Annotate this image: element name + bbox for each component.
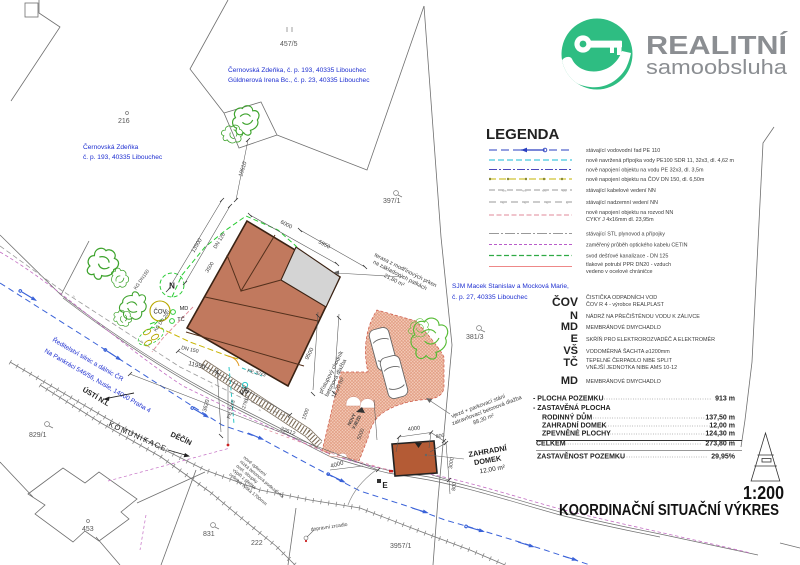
svg-text:TČ: TČ bbox=[177, 316, 184, 323]
svg-text:MD: MD bbox=[180, 306, 189, 312]
svg-text:NÁDRŽ NA PŘEČIŠTĚNOU VODU K ZÁ: NÁDRŽ NA PŘEČIŠTĚNOU VODU K ZÁLIVCE bbox=[586, 312, 700, 320]
svg-text:zaměřený průběh optického kabe: zaměřený průběh optického kabelu CETIN bbox=[586, 242, 688, 249]
svg-text:124,30 m: 124,30 m bbox=[705, 431, 735, 438]
svg-text:E: E bbox=[571, 333, 578, 345]
svg-text:≈≈: ≈≈ bbox=[542, 188, 547, 193]
svg-text:svod dešťové kanalizace - DN 1: svod dešťové kanalizace - DN 125 bbox=[586, 254, 668, 260]
svg-text:SKŘÍŇ PRO ELEKTROROZVADĚČ A EL: SKŘÍŇ PRO ELEKTROROZVADĚČ A ELEKTROMĚR bbox=[586, 335, 715, 343]
svg-text:MEMBRÁNOVÉ DMYCHADLO: MEMBRÁNOVÉ DMYCHADLO bbox=[586, 324, 661, 331]
svg-text:MD: MD bbox=[561, 375, 578, 387]
svg-text:nově napojení objektu na vodu: nově napojení objektu na vodu PE 32x3, d… bbox=[586, 168, 704, 174]
svg-text:VNĚJŠÍ JEDNOTKA NIBE AMS 10-12: VNĚJŠÍ JEDNOTKA NIBE AMS 10-12 bbox=[586, 363, 677, 371]
svg-text:ZPEVNĚNÉ PLOCHY: ZPEVNĚNÉ PLOCHY bbox=[542, 429, 611, 438]
svg-text:381/3: 381/3 bbox=[466, 334, 484, 341]
svg-text:- ZASTAVĚNÁ PLOCHA: - ZASTAVĚNÁ PLOCHA bbox=[533, 403, 611, 412]
svg-text:829/1: 829/1 bbox=[29, 432, 47, 439]
svg-text:≈≈: ≈≈ bbox=[502, 188, 507, 193]
svg-text:ZASTAVĚNOST POZEMKU: ZASTAVĚNOST POZEMKU bbox=[537, 452, 625, 461]
svg-text:Černovská Zdeňka, č. p. 193, 4: Černovská Zdeňka, č. p. 193, 40335 Libou… bbox=[228, 65, 367, 74]
svg-text:ZAHRADNÍ DOMEK: ZAHRADNÍ DOMEK bbox=[542, 421, 607, 430]
svg-text:Černovská Zdeňka: Černovská Zdeňka bbox=[83, 142, 139, 151]
svg-text:TČ: TČ bbox=[563, 356, 578, 369]
svg-text:MD: MD bbox=[561, 321, 578, 333]
svg-text:≈≈: ≈≈ bbox=[522, 188, 527, 193]
svg-text:831: 831 bbox=[203, 531, 215, 538]
svg-text:ČOV: ČOV bbox=[552, 294, 578, 309]
svg-text:3957/1: 3957/1 bbox=[390, 543, 412, 550]
svg-text:E: E bbox=[382, 481, 388, 490]
svg-text:stávající vodovodní řad PE 110: stávající vodovodní řad PE 110 bbox=[586, 148, 660, 154]
svg-text:273,80 m: 273,80 m bbox=[705, 441, 735, 448]
svg-text:29,95%: 29,95% bbox=[711, 454, 736, 461]
svg-text:č. p. 27, 40335 Libouchec: č. p. 27, 40335 Libouchec bbox=[452, 294, 528, 301]
svg-text:stávající kabelové vedení NN: stávající kabelové vedení NN bbox=[586, 188, 656, 194]
svg-text:216: 216 bbox=[118, 118, 130, 125]
svg-text:222: 222 bbox=[251, 540, 263, 547]
svg-text:tlakové potrubí PPR DN20 - vzd: tlakové potrubí PPR DN20 - vzduch bbox=[586, 262, 671, 268]
svg-text:vedeno v ocelové chráničce: vedeno v ocelové chráničce bbox=[586, 269, 653, 275]
svg-text:č. p. 193, 40335 Libouchec: č. p. 193, 40335 Libouchec bbox=[83, 154, 163, 161]
svg-text:457/5: 457/5 bbox=[280, 41, 298, 48]
svg-text:stávající STL plynovod a přípo: stávající STL plynovod a přípojky bbox=[586, 232, 665, 238]
svg-text:Güldnerová Irena Bc., č. p. 23: Güldnerová Irena Bc., č. p. 23, 40335 Li… bbox=[228, 77, 370, 84]
svg-text:800: 800 bbox=[436, 433, 445, 440]
svg-text:ČOV R 4 - výrobce REALPLAST: ČOV R 4 - výrobce REALPLAST bbox=[586, 301, 665, 308]
svg-text:VŠ: VŠ bbox=[563, 344, 578, 357]
svg-text:CELKEM: CELKEM bbox=[536, 441, 566, 448]
svg-text:stávající nadzemní vedení NN: stávající nadzemní vedení NN bbox=[586, 200, 658, 206]
svg-text:LEGENDA: LEGENDA bbox=[486, 126, 560, 143]
svg-text:800: 800 bbox=[451, 482, 458, 492]
svg-text:ČISTIČKA ODPADNÍCH VOD: ČISTIČKA ODPADNÍCH VOD bbox=[586, 294, 657, 301]
svg-text:nově navržená přípojka vody P: nově navržená přípojka vody PE100 SDR 11… bbox=[586, 158, 734, 164]
svg-text:nově napojení objektu na ČOV D: nově napojení objektu na ČOV DN 150, dl.… bbox=[586, 176, 705, 183]
svg-text:MEMBRÁNOVÉ DMYCHADLO: MEMBRÁNOVÉ DMYCHADLO bbox=[586, 378, 661, 385]
svg-text:CYKY J 4x16mm dl. 23,95m: CYKY J 4x16mm dl. 23,95m bbox=[586, 217, 654, 223]
svg-text:KOORDINAČNÍ SITUAČNÍ VÝKRES: KOORDINAČNÍ SITUAČNÍ VÝKRES bbox=[559, 500, 779, 519]
svg-text:453: 453 bbox=[82, 526, 94, 533]
svg-text:≈≈: ≈≈ bbox=[562, 188, 567, 193]
svg-text:SJM Macek Stanislav a Mocková: SJM Macek Stanislav a Mocková Marie, bbox=[452, 283, 569, 290]
svg-text:1:200: 1:200 bbox=[743, 483, 784, 503]
svg-text:TEPELNÉ ČERPADLO NIBE SPLIT: TEPELNÉ ČERPADLO NIBE SPLIT bbox=[586, 357, 673, 364]
svg-text:913 m: 913 m bbox=[715, 396, 735, 403]
svg-text:samoobsluha: samoobsluha bbox=[646, 56, 788, 79]
svg-text:397/1: 397/1 bbox=[383, 198, 401, 205]
svg-text:nově napojení objektu na rozvo: nově napojení objektu na rozvod NN bbox=[586, 210, 673, 216]
svg-text:VODOMĚRNÁ ŠACHTA ⌀1200mm: VODOMĚRNÁ ŠACHTA ⌀1200mm bbox=[586, 347, 670, 355]
svg-text:- PLOCHA POZEMKU: - PLOCHA POZEMKU bbox=[533, 396, 604, 403]
svg-text:137,50 m: 137,50 m bbox=[705, 415, 735, 422]
svg-text:12,00 m: 12,00 m bbox=[709, 423, 735, 430]
